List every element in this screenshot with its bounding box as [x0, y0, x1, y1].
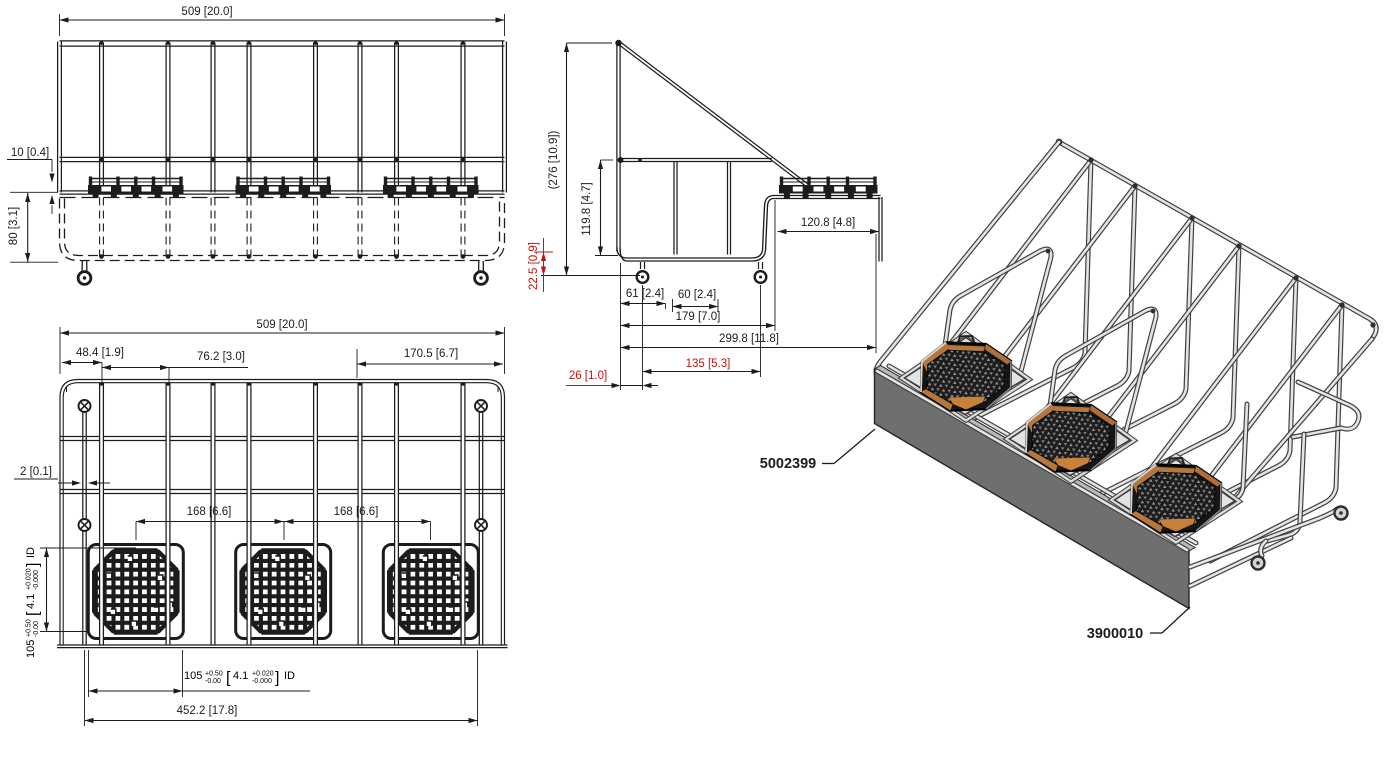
svg-text:-0.000: -0.000: [252, 678, 272, 685]
svg-text:-0.00: -0.00: [33, 621, 40, 637]
svg-text:168 [6.6]: 168 [6.6]: [187, 506, 232, 518]
svg-text:452.2 [17.8]: 452.2 [17.8]: [177, 705, 238, 717]
svg-text:61 [2.4]: 61 [2.4]: [626, 288, 664, 300]
svg-text:ID: ID: [284, 670, 295, 682]
svg-text:-0.000: -0.000: [33, 570, 40, 590]
svg-text:4.1: 4.1: [25, 594, 37, 609]
svg-text:105: 105: [184, 670, 202, 682]
svg-text:]: ]: [275, 670, 279, 687]
svg-text:120.8 [4.8]: 120.8 [4.8]: [801, 217, 855, 229]
svg-text:+0.020: +0.020: [252, 671, 274, 678]
svg-text:179 [7.0]: 179 [7.0]: [676, 311, 721, 323]
svg-text:135 [5.3]: 135 [5.3]: [686, 358, 731, 370]
svg-text:80 [3.1]: 80 [3.1]: [8, 207, 20, 245]
svg-text:119.8 [4.7]: 119.8 [4.7]: [581, 182, 593, 236]
svg-text:48.4 [1.9]: 48.4 [1.9]: [76, 347, 124, 359]
svg-text:22.5 [0.9]: 22.5 [0.9]: [528, 242, 540, 290]
svg-text:509 [20.0]: 509 [20.0]: [256, 319, 307, 331]
svg-text:3900010: 3900010: [1087, 626, 1143, 642]
svg-text:76.2 [3.0]: 76.2 [3.0]: [197, 351, 245, 363]
svg-text:ID: ID: [25, 547, 37, 558]
svg-text:+0.50: +0.50: [205, 671, 223, 678]
svg-text:+0.50: +0.50: [26, 619, 33, 637]
svg-text:[: [: [25, 611, 42, 616]
svg-text:299.8 [11.8]: 299.8 [11.8]: [719, 333, 779, 345]
svg-text:5002399: 5002399: [760, 456, 816, 472]
svg-text:10 [0.4]: 10 [0.4]: [11, 147, 49, 159]
svg-text:168 [6.6]: 168 [6.6]: [334, 506, 379, 518]
svg-text:170.5 [6.7]: 170.5 [6.7]: [404, 348, 458, 360]
svg-text:-0.00: -0.00: [205, 678, 221, 685]
svg-text:2 [0.1]: 2 [0.1]: [20, 466, 52, 478]
svg-text:]: ]: [25, 563, 42, 567]
svg-text:60 [2.4]: 60 [2.4]: [678, 289, 716, 301]
svg-text:+0.020: +0.020: [26, 568, 33, 590]
svg-text:509 [20.0]: 509 [20.0]: [181, 6, 232, 18]
svg-text:26 [1.0]: 26 [1.0]: [569, 370, 607, 382]
svg-text:(276 [10.9]): (276 [10.9]): [548, 130, 560, 189]
svg-text:4.1: 4.1: [233, 670, 248, 682]
svg-text:105: 105: [25, 640, 37, 658]
svg-text:[: [: [226, 670, 231, 687]
